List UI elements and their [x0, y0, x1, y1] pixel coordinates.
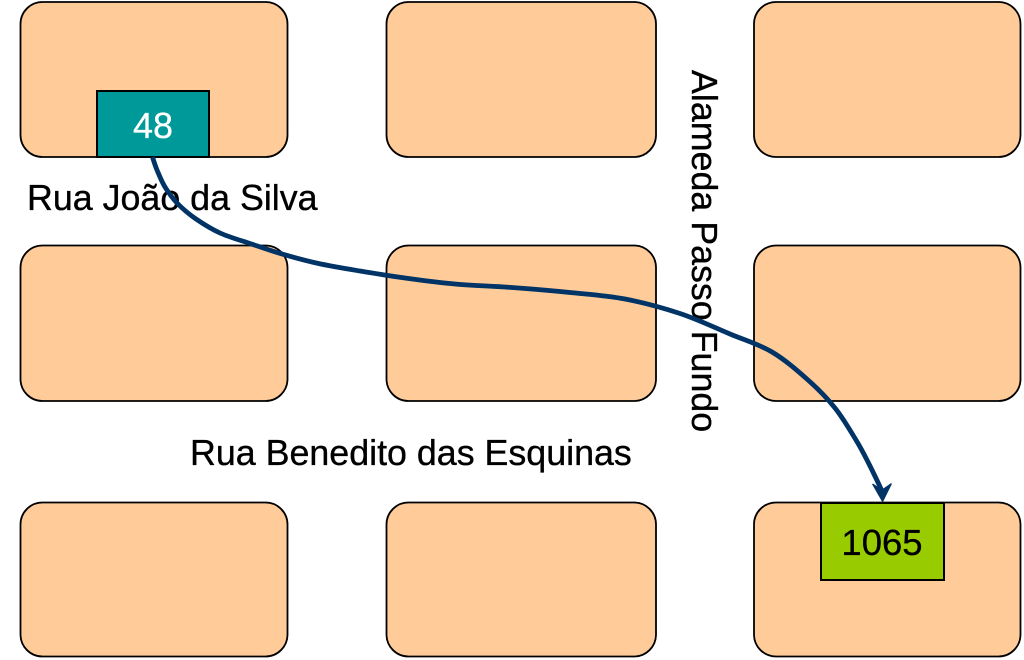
svg-text:Rua Benedito das Esquinas: Rua Benedito das Esquinas — [190, 433, 632, 473]
svg-text:1065: 1065 — [841, 522, 922, 563]
svg-text:48: 48 — [133, 105, 173, 146]
svg-text:Alameda Passo Fundo: Alameda Passo Fundo — [684, 70, 724, 432]
